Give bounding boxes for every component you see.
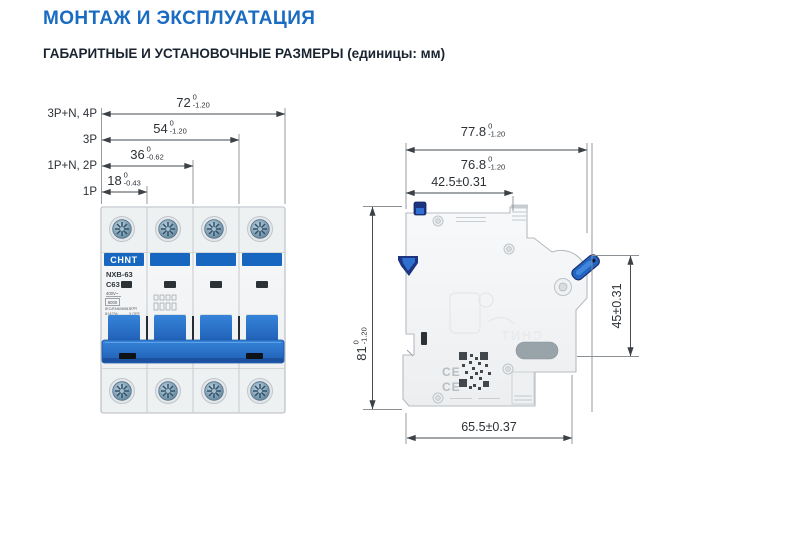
- dim-width-2p: 36 0-0.62: [130, 146, 164, 162]
- dim-width-1p: 18 0-0.43: [107, 172, 141, 188]
- mirrored-brand-watermark: CHNT: [500, 328, 542, 343]
- din-clip-slot: [516, 342, 558, 359]
- dim-depth: 65.5±0.37: [461, 420, 517, 434]
- bottom-terminal-block: [512, 372, 534, 404]
- dim-din: 45±0.31: [610, 283, 624, 328]
- front-view-breaker: CHNT NXB-63 C63 400V~ 6000 IEC/EN60898-1…: [101, 207, 285, 413]
- dim-height: 81 0-1.20: [353, 327, 369, 361]
- side-body-outline: [403, 207, 587, 406]
- toggle-handles: [108, 315, 278, 343]
- dim-body-width: 76.8 0-1.20: [461, 156, 505, 172]
- rivet: [504, 244, 514, 254]
- ce-mark: CE: [442, 365, 461, 379]
- front-dimension-lines: [102, 108, 286, 204]
- dim-mounting: 42.5±0.31: [431, 175, 487, 189]
- standard-text: IEC/EN60898-1: [105, 307, 132, 311]
- rivet: [433, 393, 443, 403]
- pole-label-1p: 1P: [24, 186, 97, 198]
- voltage-text: 400V~: [106, 291, 119, 296]
- rating-text: C63: [106, 280, 120, 289]
- technical-drawing: CHNT NXB-63 C63 400V~ 6000 IEC/EN60898-1…: [0, 0, 785, 538]
- pole-label-3p: 3P: [24, 134, 97, 146]
- rivet: [433, 216, 443, 226]
- montage-figure: МОНТАЖ И ЭКСПЛУАТАЦИЯ ГАБАРИТНЫЕ И УСТАН…: [0, 0, 785, 538]
- side-toggle: [414, 202, 426, 215]
- rivet: [503, 364, 513, 374]
- top-terminal-cap: [511, 205, 528, 209]
- dim-width-4p: 72 0-1.20: [176, 94, 210, 110]
- on-mark: I ON: [129, 307, 137, 311]
- ce-mark: CE: [442, 380, 461, 394]
- model-text: NXB-63: [106, 270, 133, 279]
- pole-label-2p: 1P+N, 2P: [24, 160, 97, 172]
- side-view-breaker: CHNT CE CE: [398, 202, 601, 406]
- pivot-rivet: [555, 279, 572, 296]
- side-left-slot: [421, 332, 427, 345]
- dim-overall-width: 77.8 0-1.20: [461, 123, 505, 139]
- handle-tie-bar: [102, 340, 284, 363]
- pole-label-4p: 3P+N, 4P: [24, 108, 97, 120]
- dim-width-3p: 54 0-1.20: [153, 120, 187, 136]
- brand-logo-text: CHNT: [110, 255, 137, 265]
- capacity-text: 6000: [108, 300, 118, 305]
